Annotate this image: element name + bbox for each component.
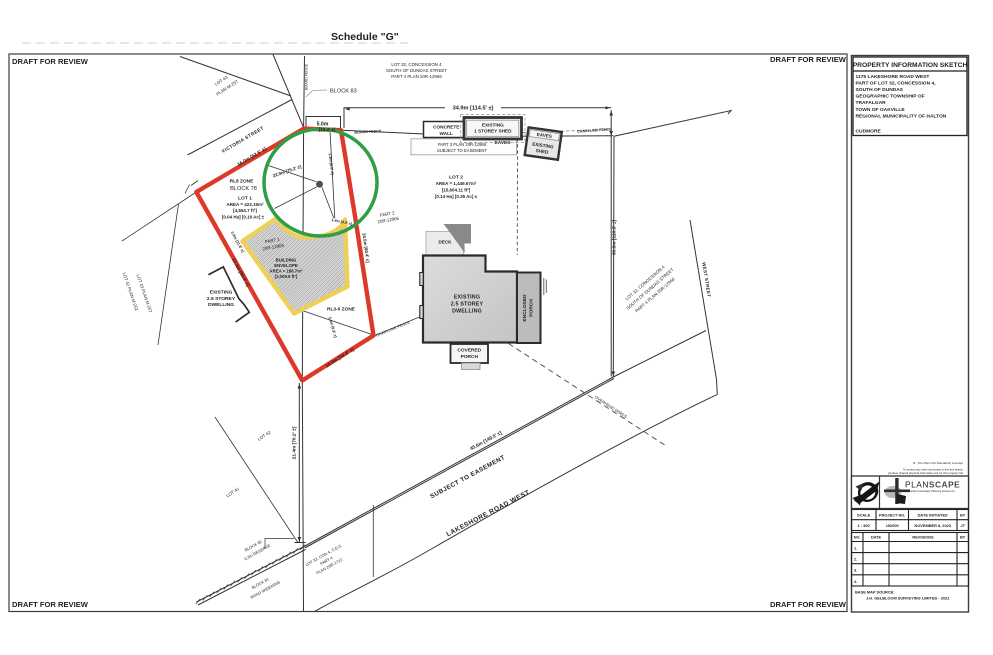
svg-text:1175 LAKESHORE ROAD WEST: 1175 LAKESHORE ROAD WEST: [856, 74, 930, 80]
svg-text:BLOCK 78: BLOCK 78: [230, 186, 257, 192]
svg-text:WALL: WALL: [440, 131, 453, 136]
svg-text:AREA = 1,449.67m²: AREA = 1,449.67m²: [436, 181, 477, 186]
svg-text:DWELLING: DWELLING: [452, 308, 482, 314]
svg-text:NOVEMBER 8, 2023: NOVEMBER 8, 2023: [914, 523, 951, 528]
svg-text:PART 4 PLAN 20R-12966: PART 4 PLAN 20R-12966: [391, 74, 442, 79]
svg-text:1.: 1.: [854, 546, 857, 551]
svg-text:BY: BY: [960, 512, 966, 517]
svg-text:3.: 3.: [854, 568, 857, 573]
svg-text:[0.14 Ha] [0.35 Ac] ±: [0.14 Ha] [0.35 Ac] ±: [435, 194, 478, 199]
svg-text:J.H. GELBLOOM SURVEYING LIMITE: J.H. GELBLOOM SURVEYING LIMITED - 2022: [866, 596, 950, 601]
svg-text:LOT 2: LOT 2: [449, 175, 463, 181]
svg-text:1 : 300: 1 : 300: [858, 523, 870, 528]
svg-text:EXISTING: EXISTING: [482, 122, 504, 127]
svg-text:BASE MAP SOURCE:: BASE MAP SOURCE:: [855, 590, 895, 595]
svg-text:34.9m [114.5' ±]: 34.9m [114.5' ±]: [453, 106, 494, 112]
svg-text:A Burden Fortunately Planning: A Burden Fortunately Planning Futures Co…: [906, 489, 956, 493]
svg-text:GEOGRAPHIC TOWNSHIP OF: GEOGRAPHIC TOWNSHIP OF: [856, 94, 925, 100]
svg-text:[15,604.11 ft²]: [15,604.11 ft²]: [442, 188, 471, 193]
svg-text:RL3-0 ZONE: RL3-0 ZONE: [327, 307, 356, 313]
svg-text:192600: 192600: [886, 523, 899, 528]
svg-text:Schedule "G": Schedule "G": [331, 31, 399, 43]
svg-text:AREA = 423.15m²: AREA = 423.15m²: [227, 202, 264, 207]
svg-text:ENVELOPE: ENVELOPE: [274, 263, 298, 268]
svg-text:COVERED: COVERED: [457, 348, 481, 354]
svg-text:LOT 1: LOT 1: [238, 196, 252, 202]
svg-text:REVISIONS: REVISIONS: [912, 535, 934, 540]
svg-text:PORCH: PORCH: [461, 354, 479, 360]
svg-text:DRAFT FOR REVIEW: DRAFT FOR REVIEW: [770, 600, 847, 609]
svg-text:EXISTING: EXISTING: [454, 294, 480, 300]
svg-text:TRAFALGAR: TRAFALGAR: [856, 100, 887, 106]
svg-text:BLOCK 83: BLOCK 83: [330, 89, 357, 95]
svg-text:AREA = 186.7m²: AREA = 186.7m²: [270, 269, 303, 274]
svg-text:SUBJECT TO EASEMENT: SUBJECT TO EASEMENT: [437, 148, 487, 153]
svg-text:[2,009.9 ft²]: [2,009.9 ft²]: [275, 274, 298, 279]
svg-text:[0.04 Ha] [0.10 Ac] ±: [0.04 Ha] [0.10 Ac] ±: [222, 215, 265, 220]
svg-text:TOWN OF OAKVILLE: TOWN OF OAKVILLE: [856, 107, 906, 113]
svg-text:NO.: NO.: [854, 535, 861, 540]
svg-text:DECK: DECK: [438, 239, 452, 244]
svg-text:EXISTING: EXISTING: [210, 290, 233, 296]
svg-text:DATE INITIATED: DATE INITIATED: [918, 512, 948, 517]
svg-text:[16.4' ±]: [16.4' ±]: [319, 127, 336, 132]
svg-text:SCALE: SCALE: [857, 512, 871, 517]
svg-text:CUDMORE: CUDMORE: [856, 129, 882, 135]
svg-text:2.5 STOREY: 2.5 STOREY: [207, 296, 236, 302]
svg-text:R - The Plan Unit Standardly C: R - The Plan Unit Standardly Concept: [913, 461, 963, 465]
svg-text:REGIONAL MUNICIPALITY OF HALTO: REGIONAL MUNICIPALITY OF HALTON: [856, 113, 947, 119]
svg-text:JT: JT: [960, 523, 965, 528]
svg-text:PROJECT NO.: PROJECT NO.: [879, 512, 905, 517]
svg-text:LOT 32, CONCESSION 4: LOT 32, CONCESSION 4: [391, 62, 442, 67]
svg-text:1 STOREY SHED: 1 STOREY SHED: [474, 129, 512, 134]
svg-text:2.: 2.: [854, 557, 857, 562]
svg-text:36.6m [120.5' ±]: 36.6m [120.5' ±]: [612, 219, 618, 255]
svg-text:2.5 STOREY: 2.5 STOREY: [451, 301, 484, 307]
svg-text:RL8 ZONE: RL8 ZONE: [230, 179, 255, 185]
svg-text:BUILDING: BUILDING: [276, 258, 297, 263]
svg-text:CONCRETE: CONCRETE: [433, 125, 459, 130]
svg-text:BOARD FENCE: BOARD FENCE: [305, 63, 309, 90]
svg-text:DWELLING: DWELLING: [208, 302, 234, 308]
svg-text:4.: 4.: [854, 579, 857, 584]
svg-text:[4,554.7 ft²]: [4,554.7 ft²]: [233, 208, 257, 213]
svg-text:DRAFT FOR REVIEW: DRAFT FOR REVIEW: [12, 57, 89, 66]
svg-text:DATE: DATE: [871, 535, 882, 540]
svg-text:DRAFT FOR REVIEW: DRAFT FOR REVIEW: [12, 600, 89, 609]
svg-text:DRAFT FOR REVIEW: DRAFT FOR REVIEW: [770, 55, 847, 64]
svg-text:ENCLOSED: ENCLOSED: [522, 294, 528, 322]
svg-text:PART OF LOT 32, CONCESSION 4,: PART OF LOT 32, CONCESSION 4,: [856, 80, 937, 86]
svg-text:SOUTH OF DUNDAS: SOUTH OF DUNDAS: [856, 87, 904, 93]
svg-text:SOUTH OF DUNDAS STREET: SOUTH OF DUNDAS STREET: [386, 68, 447, 73]
svg-text:PROPERTY INFORMATION SKETCH: PROPERTY INFORMATION SKETCH: [853, 62, 968, 69]
svg-text:produce shaped physical inform: produce shaped physical information are …: [888, 471, 963, 475]
svg-text:BY: BY: [960, 535, 966, 540]
svg-text:21.4m [70.2' ±]: 21.4m [70.2' ±]: [292, 426, 298, 459]
svg-text:PORCH: PORCH: [529, 299, 535, 317]
svg-text:PLANSCAPE: PLANSCAPE: [905, 480, 960, 490]
